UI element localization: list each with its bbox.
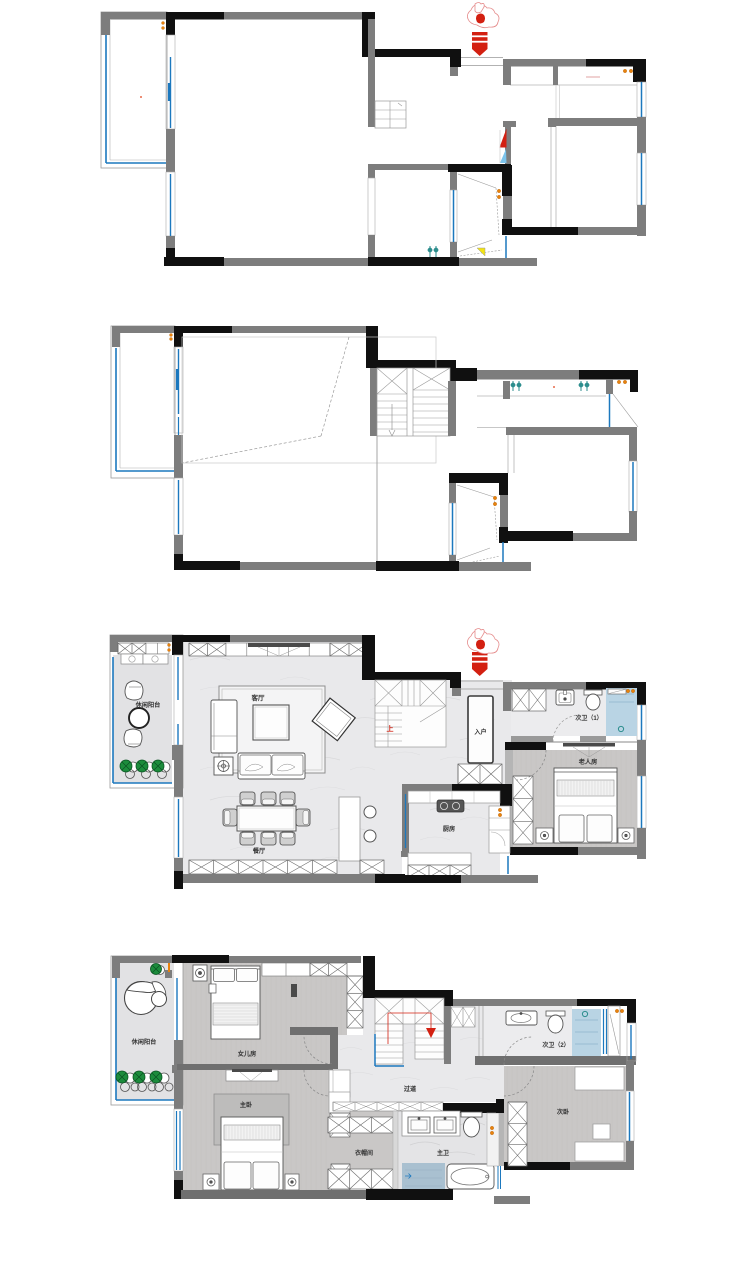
svg-text:休闲阳台: 休闲阳台 (131, 1038, 157, 1046)
svg-text:客厅: 客厅 (251, 693, 266, 702)
svg-text:餐厅: 餐厅 (253, 847, 266, 855)
svg-text:次卧: 次卧 (557, 1108, 570, 1116)
svg-text:主卫: 主卫 (437, 1149, 449, 1157)
svg-text:入户: 入户 (473, 728, 486, 736)
svg-text:过道: 过道 (404, 1085, 417, 1093)
svg-text:上: 上 (387, 724, 394, 733)
svg-text:老人房: 老人房 (579, 758, 598, 766)
svg-text:厨房: 厨房 (443, 825, 455, 833)
svg-text:衣帽间: 衣帽间 (355, 1149, 373, 1157)
svg-text:女儿房: 女儿房 (238, 1050, 257, 1058)
svg-text:主卧: 主卧 (240, 1101, 253, 1109)
svg-text:休闲阳台: 休闲阳台 (135, 701, 161, 709)
svg-text:次卫（2）: 次卫（2） (542, 1041, 569, 1049)
